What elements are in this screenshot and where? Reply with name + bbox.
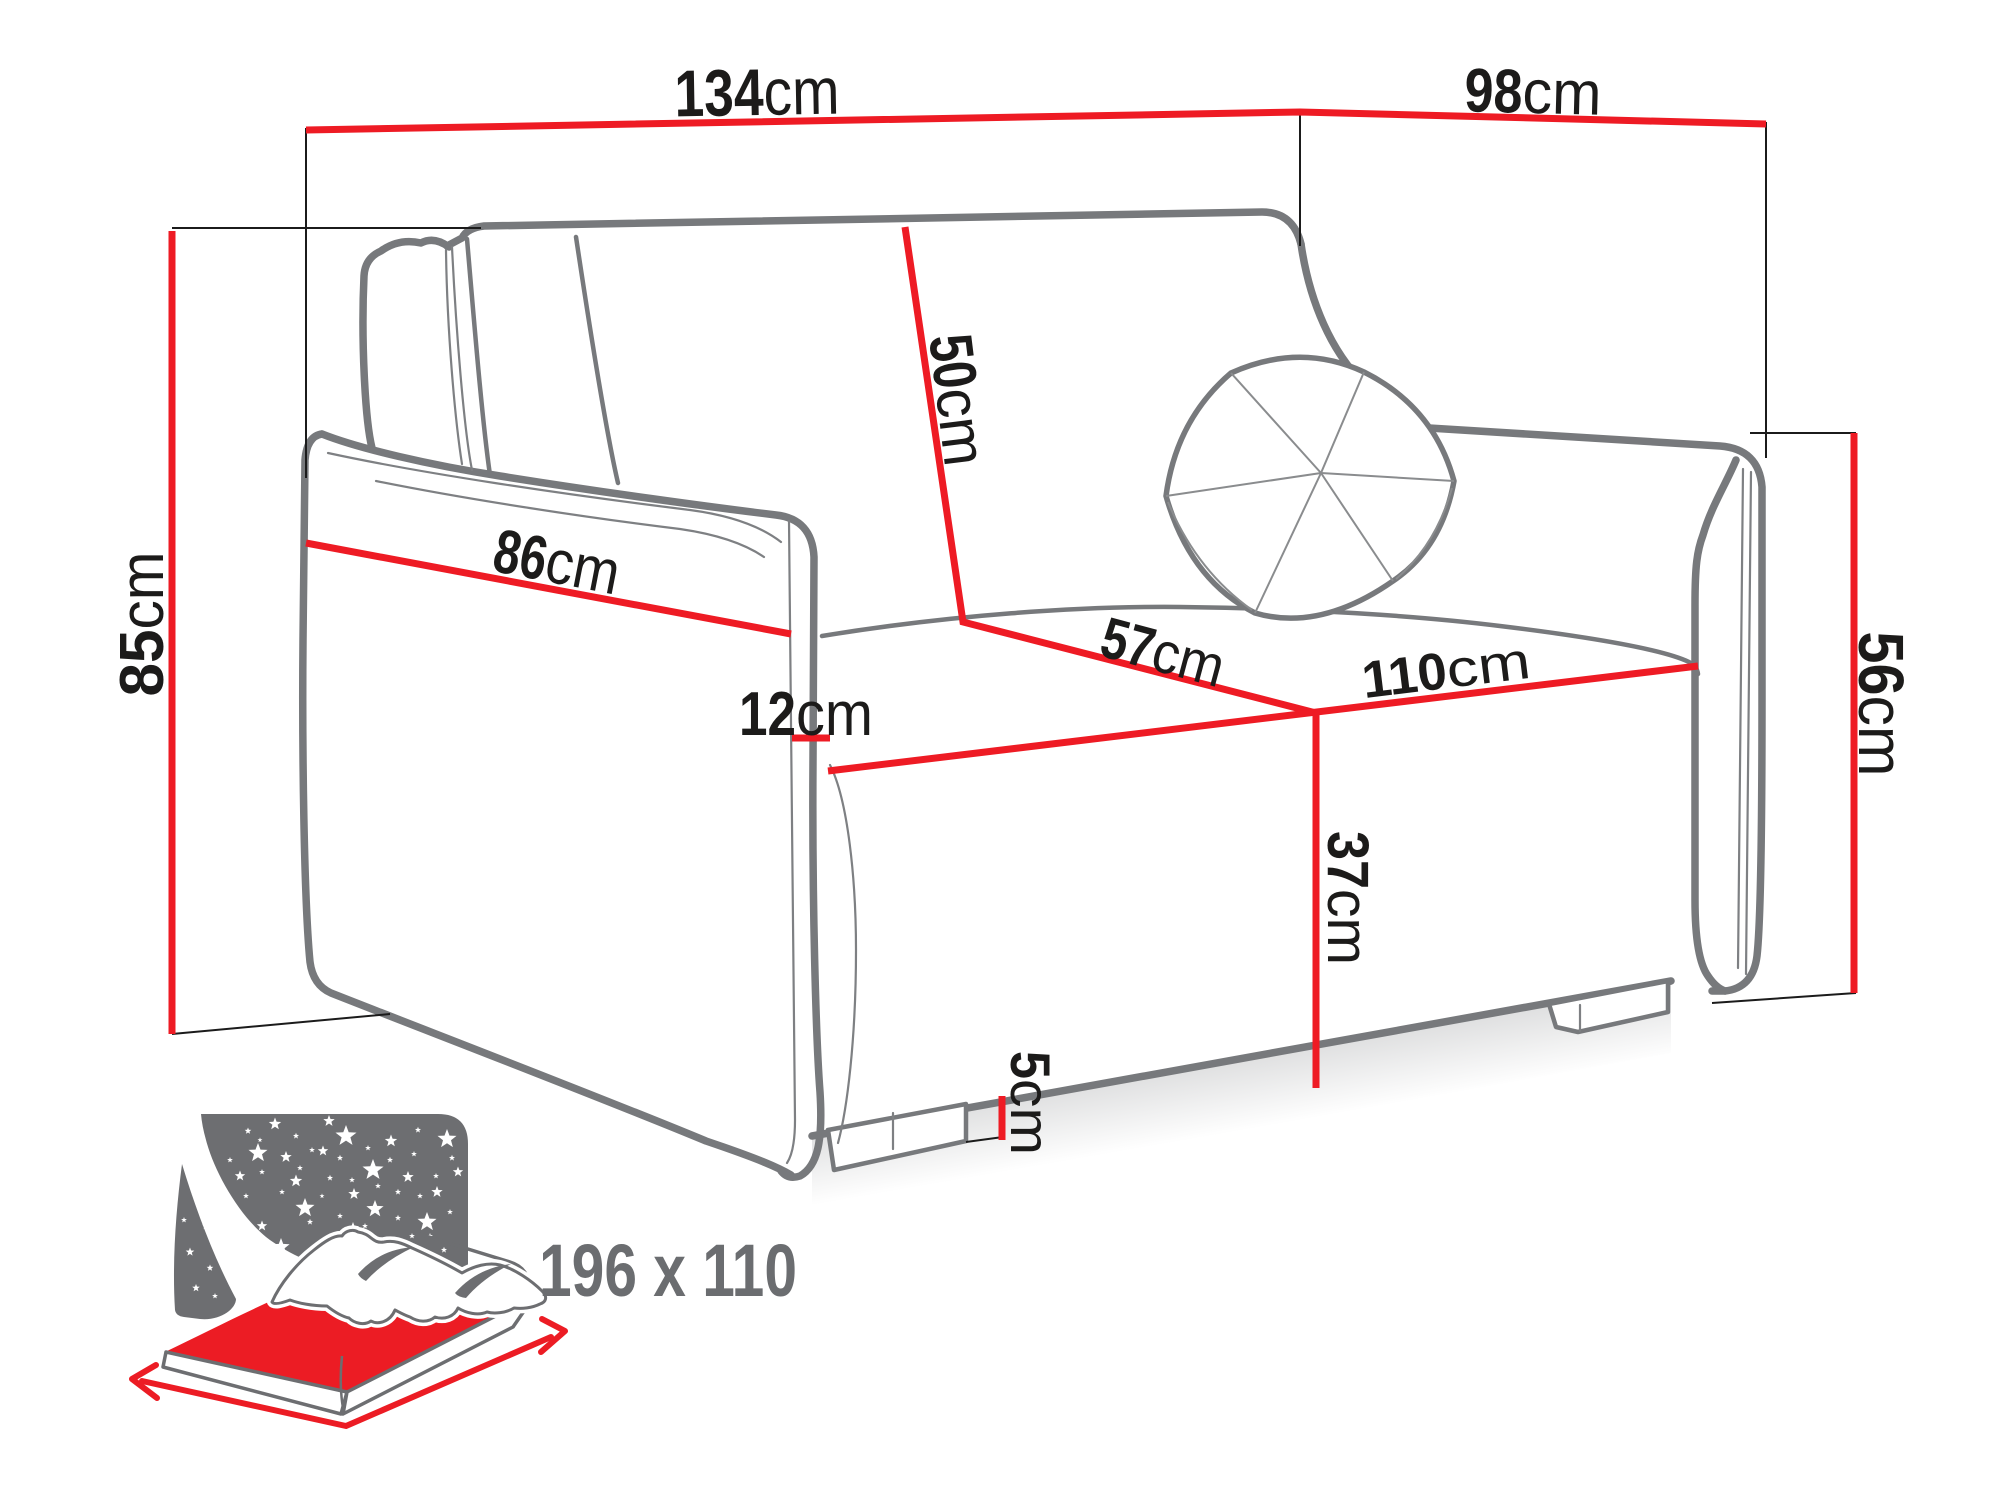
svg-text:5cm: 5cm bbox=[999, 1051, 1062, 1155]
svg-text:98cm: 98cm bbox=[1464, 56, 1603, 129]
svg-text:56cm: 56cm bbox=[1845, 632, 1917, 777]
svg-text:12cm: 12cm bbox=[739, 680, 873, 749]
svg-text:85cm: 85cm bbox=[108, 552, 177, 697]
svg-text:37cm: 37cm bbox=[1315, 831, 1380, 965]
svg-text:134cm: 134cm bbox=[674, 54, 840, 131]
svg-text:196 x 110: 196 x 110 bbox=[539, 1229, 797, 1312]
